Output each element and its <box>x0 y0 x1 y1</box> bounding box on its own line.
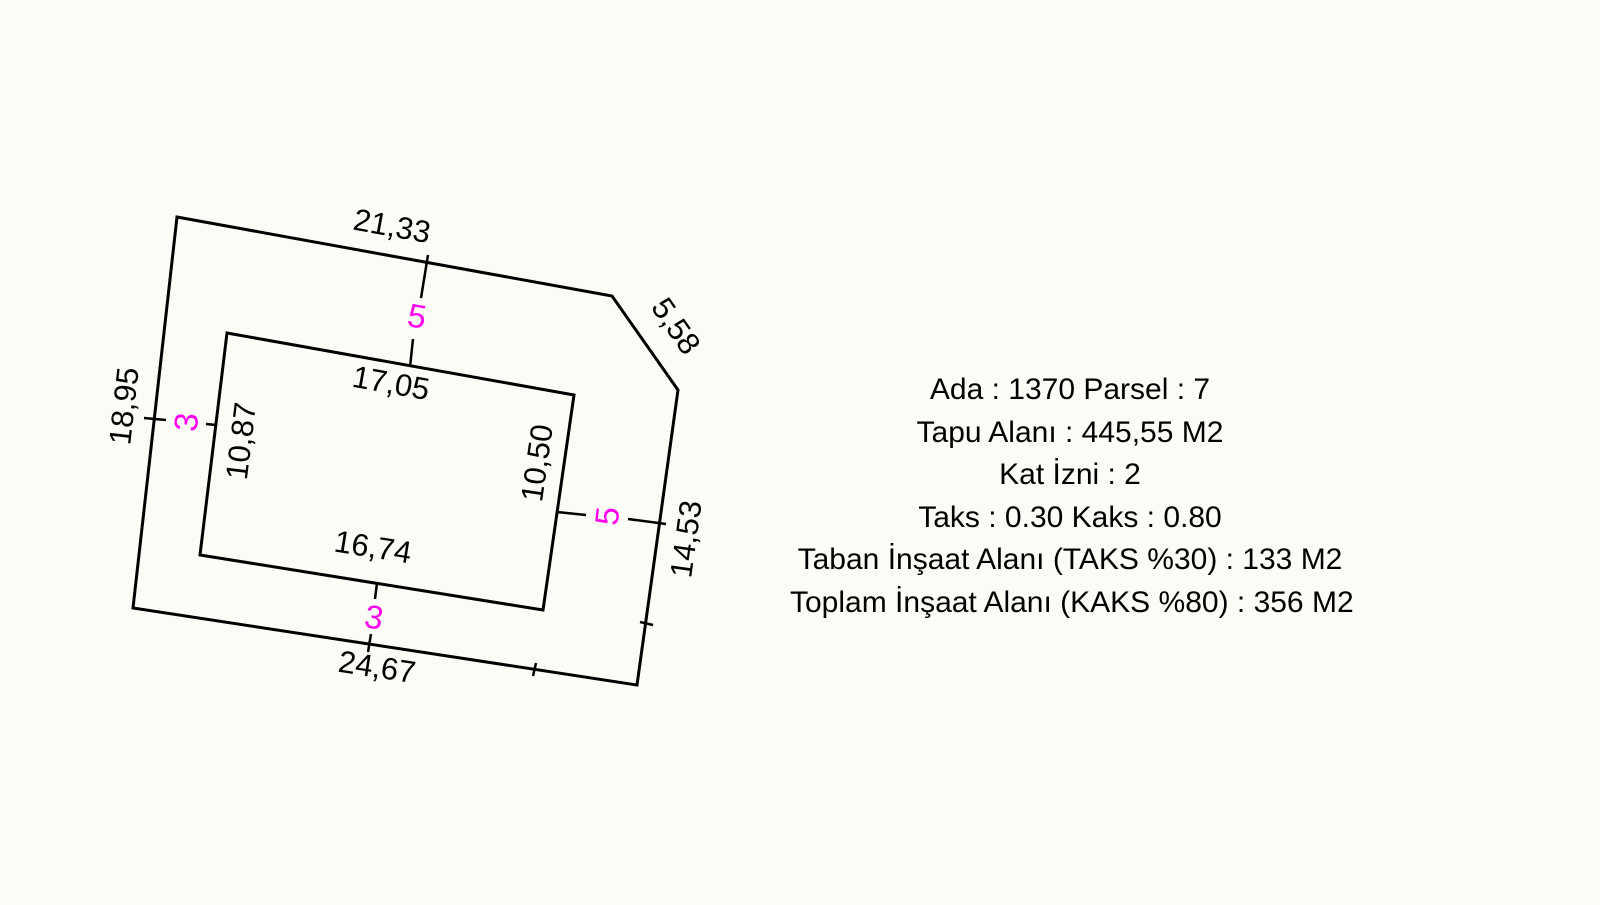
dim-label-outer-top: 21,33 <box>351 202 434 250</box>
parcel-plan-canvas: 21,33 5,58 18,95 14,53 24,67 17,05 10,87… <box>0 0 1600 900</box>
info-line-taban-insaat: Taban İnşaat Alanı (TAKS %30) : 133 M2 <box>790 539 1350 582</box>
dim-label-inner-right: 10,50 <box>514 422 560 504</box>
info-line-taks-kaks: Taks : 0.30 Kaks : 0.80 <box>790 497 1350 540</box>
info-line-tapu-alani: Tapu Alanı : 445,55 M2 <box>790 412 1350 455</box>
boundary-tick-right-edge <box>640 622 653 625</box>
info-line-toplam-insaat: Toplam İnşaat Alanı (KAKS %80) : 356 M2 <box>790 582 1350 625</box>
setback-label-top: 5 <box>405 296 430 336</box>
dim-label-outer-left: 18,95 <box>102 366 145 447</box>
dim-label-outer-right: 14,53 <box>663 498 708 580</box>
dim-label-outer-chamfer: 5,58 <box>644 291 707 361</box>
parcel-info-panel: Ada : 1370 Parsel : 7 Tapu Alanı : 445,5… <box>790 369 1350 625</box>
setback-label-left: 3 <box>167 411 206 433</box>
boundary-tick-bottom-edge <box>533 663 536 676</box>
info-line-ada-parsel: Ada : 1370 Parsel : 7 <box>790 369 1350 412</box>
setback-label-bottom: 3 <box>362 597 387 637</box>
dim-label-inner-bottom: 16,74 <box>332 524 414 571</box>
dim-label-inner-left: 10,87 <box>219 400 263 481</box>
setback-label-right: 5 <box>588 505 627 527</box>
parcel-boundary <box>133 217 678 685</box>
info-line-kat-izni: Kat İzni : 2 <box>790 454 1350 497</box>
